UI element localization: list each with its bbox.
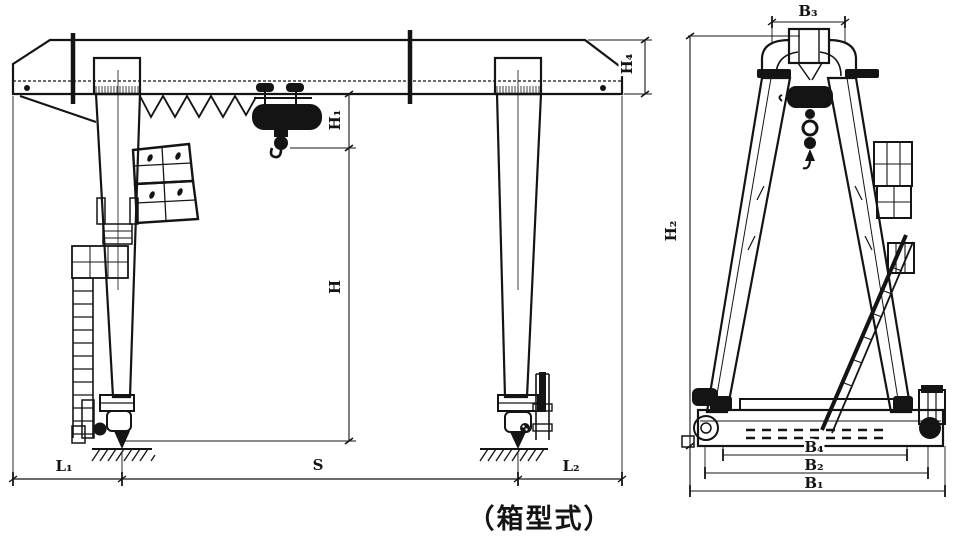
- drawing-sheet: H₁ H H₄: [0, 0, 971, 546]
- right-leg: [495, 58, 541, 397]
- left-leg: [72, 58, 140, 397]
- right-travel-truck: [480, 372, 552, 461]
- hook-block: [274, 136, 288, 150]
- leg-base-plate: [893, 396, 913, 411]
- buffer: [682, 436, 694, 447]
- front-elevation: H₁ H H₄: [9, 30, 652, 486]
- pulley-ring: [803, 121, 817, 135]
- gear-detail: [520, 423, 530, 433]
- hoist-end-view: [780, 86, 834, 168]
- dim-label-b4: B₄: [804, 438, 824, 456]
- electrical-panels: [133, 144, 198, 223]
- leg-clamp: [845, 69, 879, 78]
- dim-label-l2: L₂: [562, 457, 579, 475]
- truck-wheel: [94, 423, 107, 436]
- access-ladder: [72, 278, 94, 443]
- dim-label-h4: H₄: [618, 53, 636, 74]
- drawing-caption: （箱型式）: [468, 503, 613, 535]
- dim-girder-height: H₄: [588, 37, 652, 97]
- leg-splice-block: [103, 224, 132, 244]
- saddle: [798, 63, 822, 80]
- a-frame-legs: [707, 78, 911, 412]
- hook-icon: [803, 161, 810, 168]
- left-travel-truck: [92, 395, 155, 461]
- hoist-body: [252, 104, 322, 130]
- ground-hatch: [480, 449, 544, 461]
- festoon-cable: [140, 96, 256, 117]
- dim-label-h1: H₁: [326, 110, 344, 131]
- end-stop-dot-left: [24, 85, 30, 91]
- rail-wedge: [114, 431, 130, 449]
- trolley-wheel: [286, 83, 304, 92]
- dim-label-h2: H₂: [662, 221, 680, 242]
- rail-wedge: [510, 432, 526, 449]
- dim-label-h: H: [326, 280, 344, 294]
- dim-label-s: S: [313, 456, 324, 474]
- end-stop-dot-right: [600, 85, 606, 91]
- trolley-wheel: [256, 83, 274, 92]
- dim-label-b3: B₃: [798, 2, 817, 20]
- cable-stand: [533, 372, 552, 440]
- gantry-crane-drawing: H₁ H H₄: [0, 0, 971, 546]
- left-wheel-unit: [692, 388, 718, 440]
- right-wheel-unit: [919, 385, 945, 439]
- hoist-body-end: [787, 86, 833, 108]
- side-elevation: B₃ H₂ B₄ B₂ B₁: [662, 2, 945, 497]
- top-cap: [757, 29, 879, 80]
- corner-brace: [20, 96, 96, 122]
- dim-label-b2: B₂: [804, 456, 823, 474]
- leg-clamp: [757, 69, 791, 78]
- dim-label-b1: B₁: [804, 474, 823, 492]
- ground-hatch: [92, 449, 155, 461]
- dim-label-l1: L₁: [55, 457, 72, 475]
- dim-lifting-height: H: [124, 148, 356, 444]
